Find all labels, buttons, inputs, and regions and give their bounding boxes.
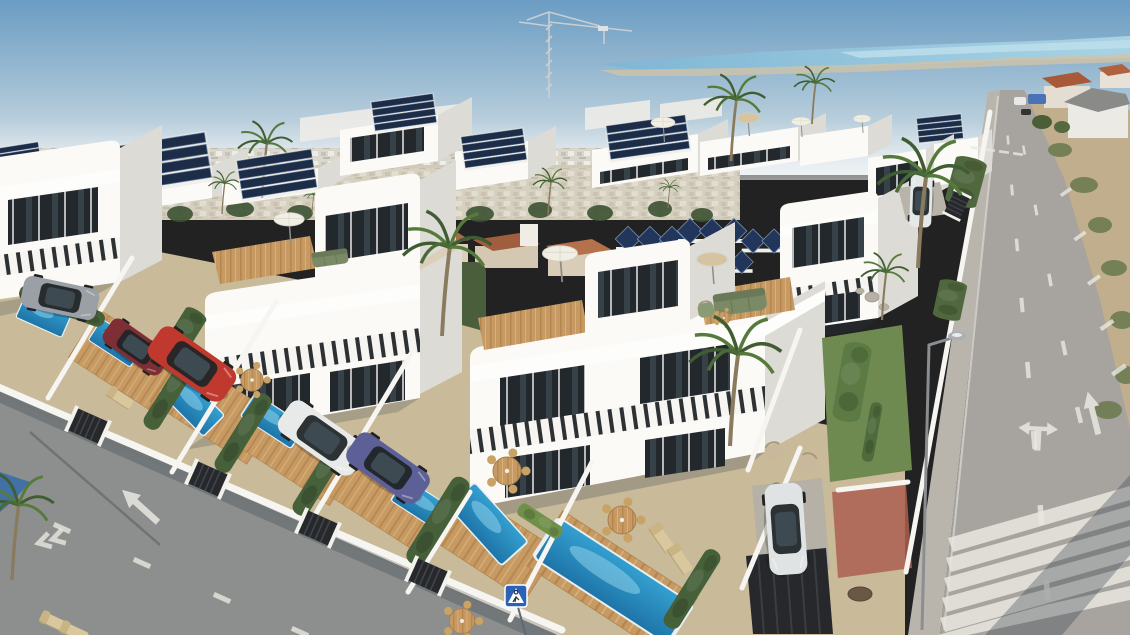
villa-development-render xyxy=(0,0,1130,635)
red-paving-apron xyxy=(832,484,912,578)
stone xyxy=(856,288,864,294)
car-white-suv xyxy=(761,480,811,578)
render-canvas xyxy=(0,0,1130,635)
stone xyxy=(865,292,879,302)
manhole-cover xyxy=(848,587,872,601)
solar xyxy=(916,113,965,145)
